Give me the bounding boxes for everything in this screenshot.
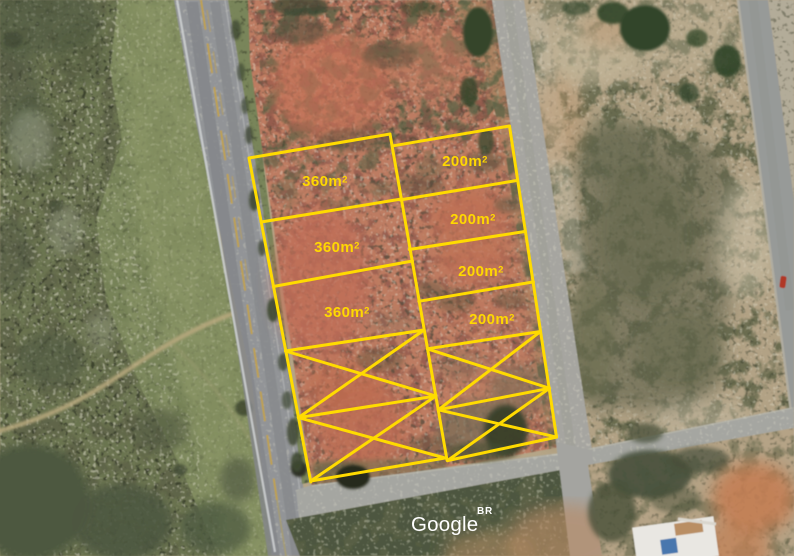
svg-text:Google: Google xyxy=(411,513,478,536)
svg-text:360m2: 360m2 xyxy=(314,239,360,256)
svg-text:200m2: 200m2 xyxy=(450,211,496,228)
svg-text:200m2: 200m2 xyxy=(469,311,515,328)
svg-text:BR: BR xyxy=(477,506,493,517)
svg-text:360m2: 360m2 xyxy=(302,173,348,190)
svg-text:360m2: 360m2 xyxy=(324,304,370,321)
svg-text:200m2: 200m2 xyxy=(458,263,504,280)
svg-text:200m2: 200m2 xyxy=(442,153,488,170)
